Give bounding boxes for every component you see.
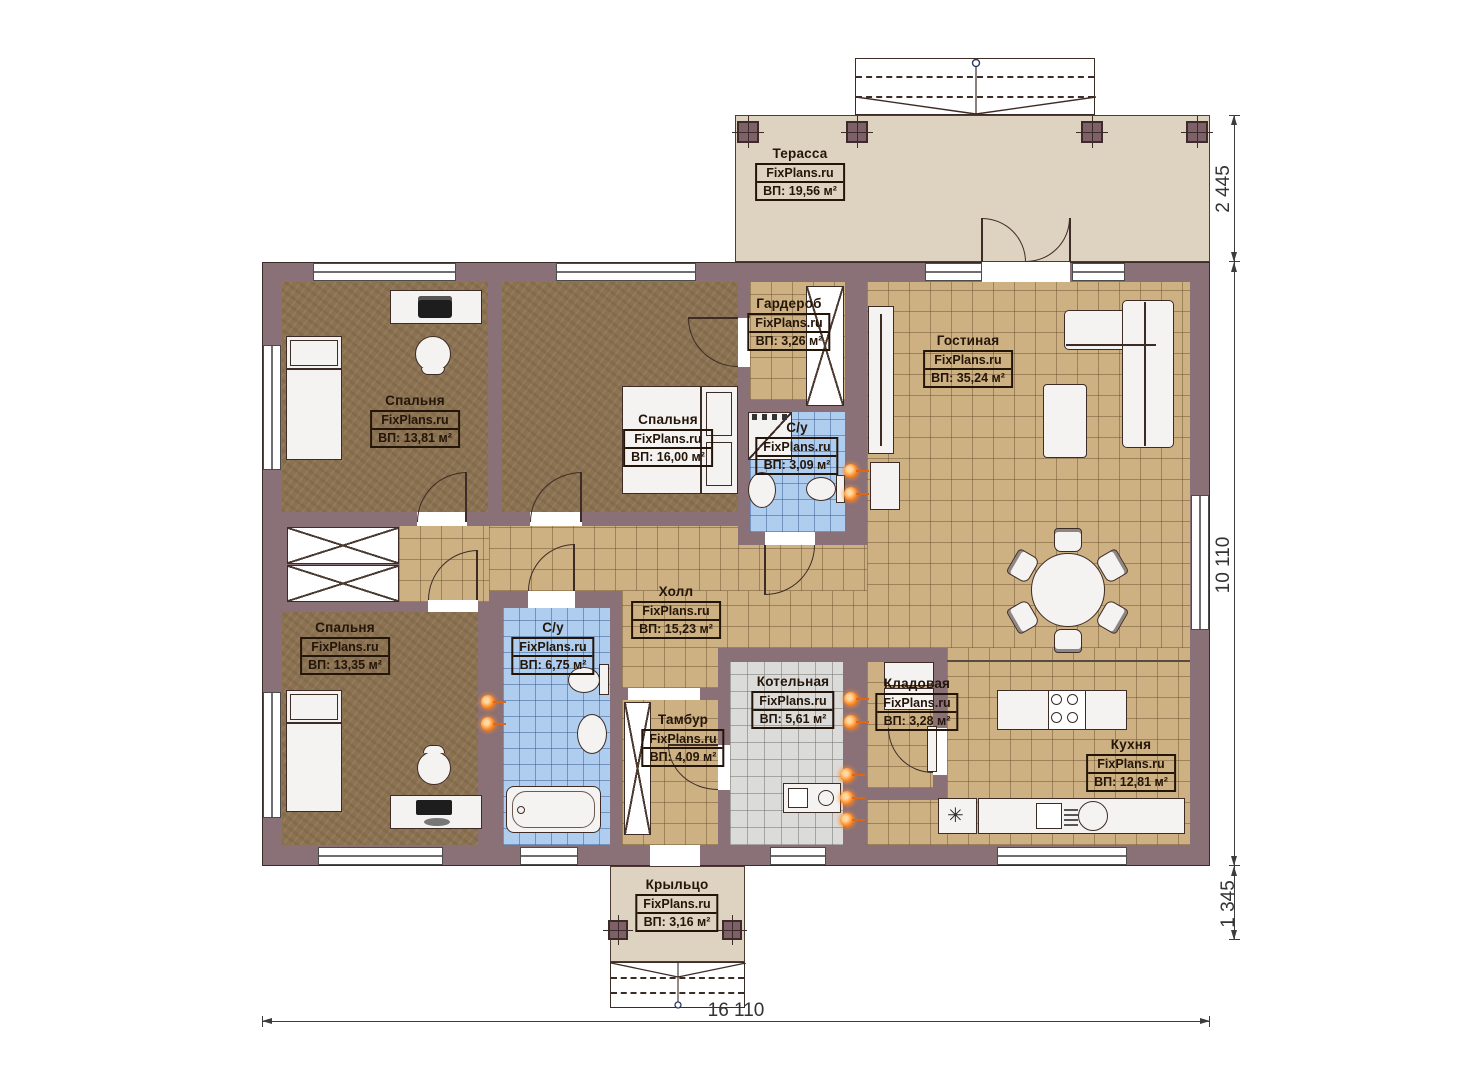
window xyxy=(1072,263,1125,281)
terrace-column xyxy=(846,121,868,143)
room-area: ВП: 3,09 м² xyxy=(757,457,836,473)
radiator-icon xyxy=(844,487,870,501)
radiator-icon xyxy=(481,695,507,709)
sink xyxy=(577,714,607,754)
watermark: FixPlans.ru xyxy=(513,639,592,657)
bathroom-door-leaf xyxy=(764,545,766,595)
desk-computer xyxy=(418,296,452,318)
dining-table xyxy=(1031,553,1105,627)
window xyxy=(263,345,281,470)
sofa-seat-line xyxy=(1144,302,1146,446)
room-label-bedroom-top-left: Спальня FixPlans.ru ВП: 13,81 м² xyxy=(370,393,460,448)
room-name: Кладовая xyxy=(875,676,958,691)
terrace-door-leaf xyxy=(981,218,983,262)
room-name: Тамбур xyxy=(641,712,724,727)
room-name: Кухня xyxy=(1086,737,1176,752)
room-label-kitchen: Кухня FixPlans.ru ВП: 12,81 м² xyxy=(1086,737,1176,792)
room-label-porch: Крыльцо FixPlans.ru ВП: 3,16 м² xyxy=(635,877,718,932)
room-label-living-room: Гостиная FixPlans.ru ВП: 35,24 м² xyxy=(923,333,1013,388)
room-name: С/у xyxy=(511,620,594,635)
watermark: FixPlans.ru xyxy=(637,896,716,914)
room-label-boiler-room: Котельная FixPlans.ru ВП: 5,61 м² xyxy=(751,674,834,729)
dimension-text-terrace-depth: 2 445 xyxy=(1213,161,1235,217)
watermark: FixPlans.ru xyxy=(925,352,1011,370)
desk-chair xyxy=(415,336,451,372)
room-name: Спальня xyxy=(300,620,390,635)
room-label-bathroom-large: С/у FixPlans.ru ВП: 6,75 м² xyxy=(511,620,594,675)
room-name: Гардероб xyxy=(747,296,830,311)
watermark: FixPlans.ru xyxy=(372,412,458,430)
room-area: ВП: 15,23 м² xyxy=(633,621,719,637)
terrace-column xyxy=(1186,121,1208,143)
window xyxy=(556,263,696,281)
stove-burner xyxy=(1051,694,1062,705)
desk-keyboard xyxy=(424,818,450,826)
door-opening xyxy=(428,600,478,612)
entrance-door-opening xyxy=(650,845,700,866)
watermark: FixPlans.ru xyxy=(643,731,722,749)
room-area: ВП: 13,81 м² xyxy=(372,430,458,446)
radiator-icon xyxy=(844,692,870,706)
toilet-tank xyxy=(599,664,609,695)
bathroom-door-leaf xyxy=(573,544,575,591)
stove-burner xyxy=(1067,694,1078,705)
kitchen-sink-bowl xyxy=(1078,801,1108,831)
desk-computer xyxy=(416,800,452,815)
room-label-pantry: Кладовая FixPlans.ru ВП: 3,28 м² xyxy=(875,676,958,731)
watermark: FixPlans.ru xyxy=(1088,756,1174,774)
door-opening xyxy=(528,591,575,608)
watermark: FixPlans.ru xyxy=(625,431,711,449)
terrace-door-leaf xyxy=(1069,218,1071,262)
dimension-text-porch-depth: 1 345 xyxy=(1218,878,1240,930)
room-label-wardrobe: Гардероб FixPlans.ru ВП: 3,26 м² xyxy=(747,296,830,351)
window xyxy=(520,847,578,865)
window xyxy=(263,692,281,818)
pantry-door-leaf xyxy=(927,726,937,772)
terrace-column xyxy=(737,121,759,143)
dimension-tick xyxy=(1209,1016,1210,1027)
terrace-door-opening xyxy=(982,262,1070,282)
wardrobe-door-leaf xyxy=(688,317,738,319)
floor-plan-canvas: ✳ Терасса FixP xyxy=(0,0,1473,1080)
window xyxy=(770,847,826,865)
room-area: ВП: 6,75 м² xyxy=(513,657,592,673)
watermark: FixPlans.ru xyxy=(302,639,388,657)
watermark: FixPlans.ru xyxy=(749,315,828,333)
kitchen-floor-west xyxy=(867,800,947,845)
dimension-text-house-depth: 10 110 xyxy=(1213,535,1235,595)
sink xyxy=(748,472,776,508)
stove-burner xyxy=(1051,712,1062,723)
bedroom-door-leaf xyxy=(476,550,478,600)
room-label-tambour: Тамбур FixPlans.ru ВП: 4,09 м² xyxy=(641,712,724,767)
watermark: FixPlans.ru xyxy=(753,693,832,711)
radiator-icon xyxy=(840,768,866,782)
radiator-icon xyxy=(840,791,866,805)
watermark: FixPlans.ru xyxy=(877,695,956,713)
stool-back xyxy=(423,745,445,753)
sofa-seat-line xyxy=(1066,344,1156,346)
boiler-hatch xyxy=(788,788,808,808)
watermark: FixPlans.ru xyxy=(757,165,843,183)
watermark: FixPlans.ru xyxy=(633,603,719,621)
room-name: С/у xyxy=(755,420,838,435)
bed-blanket-line xyxy=(286,368,342,370)
cabinet xyxy=(870,462,900,510)
room-label-bedroom-middle: Спальня FixPlans.ru ВП: 16,00 м² xyxy=(623,412,713,467)
window xyxy=(313,263,456,281)
porch-column xyxy=(722,920,742,940)
desk-chair-back xyxy=(421,368,445,375)
bed-pillow xyxy=(290,340,338,366)
window xyxy=(997,847,1127,865)
room-name: Спальня xyxy=(370,393,460,408)
boiler-dial xyxy=(818,790,834,806)
room-area: ВП: 4,09 м² xyxy=(643,749,722,765)
room-area: ВП: 3,26 м² xyxy=(749,333,828,349)
door-opening xyxy=(765,532,815,545)
room-name: Спальня xyxy=(623,412,713,427)
window xyxy=(1191,495,1209,630)
room-name: Крыльцо xyxy=(635,877,718,892)
hall-closet xyxy=(287,527,399,564)
room-area: ВП: 16,00 м² xyxy=(625,449,711,465)
bathtub-drain xyxy=(517,806,525,814)
hall-main-floor xyxy=(489,526,738,591)
stool xyxy=(417,751,451,785)
door-opening xyxy=(628,688,700,700)
sofa-section xyxy=(1122,300,1174,448)
dimension-tick xyxy=(1229,939,1240,940)
room-label-hall: Холл FixPlans.ru ВП: 15,23 м² xyxy=(631,584,721,639)
hall-tambour-neck-floor xyxy=(622,648,718,688)
radiator-icon xyxy=(481,717,507,731)
room-name: Терасса xyxy=(755,146,845,161)
dimension-tick xyxy=(1229,115,1240,116)
room-label-bathroom-small: С/у FixPlans.ru ВП: 3,09 м² xyxy=(755,420,838,475)
dimension-arrow xyxy=(1231,866,1237,876)
kitchen-sink-basin xyxy=(1036,803,1062,829)
terrace-steps-guides xyxy=(856,59,1096,116)
room-area: ВП: 3,28 м² xyxy=(877,713,956,729)
radiator-icon xyxy=(844,464,870,478)
radiator-icon xyxy=(844,715,870,729)
dimension-text-house-width: 16 110 xyxy=(706,1000,766,1022)
room-label-bedroom-bottom-left: Спальня FixPlans.ru ВП: 13,35 м² xyxy=(300,620,390,675)
bedroom-door-leaf xyxy=(465,472,467,522)
dimension-arrow xyxy=(1231,262,1237,272)
bed-pillow xyxy=(290,694,338,720)
shelf-unit-line xyxy=(880,314,882,446)
hall-closet xyxy=(287,565,399,602)
room-name: Котельная xyxy=(751,674,834,689)
watermark: FixPlans.ru xyxy=(757,439,836,457)
kitchen-drainer xyxy=(1064,806,1078,826)
porch-column xyxy=(608,920,628,940)
room-area: ВП: 3,16 м² xyxy=(637,914,716,930)
dimension-arrow xyxy=(262,1018,272,1024)
window xyxy=(925,263,982,281)
bed-blanket-line xyxy=(286,722,342,724)
room-area: ВП: 13,35 м² xyxy=(302,657,388,673)
room-name: Гостиная xyxy=(923,333,1013,348)
dining-chair xyxy=(1054,629,1082,653)
room-area: ВП: 12,81 м² xyxy=(1088,774,1174,790)
room-area: ВП: 5,61 м² xyxy=(753,711,832,727)
stove-burner xyxy=(1067,712,1078,723)
dimension-arrow xyxy=(1231,115,1237,125)
window xyxy=(318,847,443,865)
radiator-icon xyxy=(840,813,866,827)
fridge-snowflake-icon: ✳ xyxy=(947,806,964,826)
room-area: ВП: 19,56 м² xyxy=(757,183,843,199)
toilet xyxy=(806,477,836,501)
dimension-tick xyxy=(262,1016,263,1027)
coffee-table xyxy=(1043,384,1087,458)
room-name: Холл xyxy=(631,584,721,599)
dining-chair xyxy=(1054,528,1082,552)
terrace-column xyxy=(1081,121,1103,143)
bedroom-door-leaf xyxy=(580,472,582,522)
terrace-steps xyxy=(855,58,1095,115)
room-label-terrace: Терасса FixPlans.ru ВП: 19,56 м² xyxy=(755,146,845,201)
dining-kitchen-divider-line xyxy=(947,660,1190,662)
room-area: ВП: 35,24 м² xyxy=(925,370,1011,386)
